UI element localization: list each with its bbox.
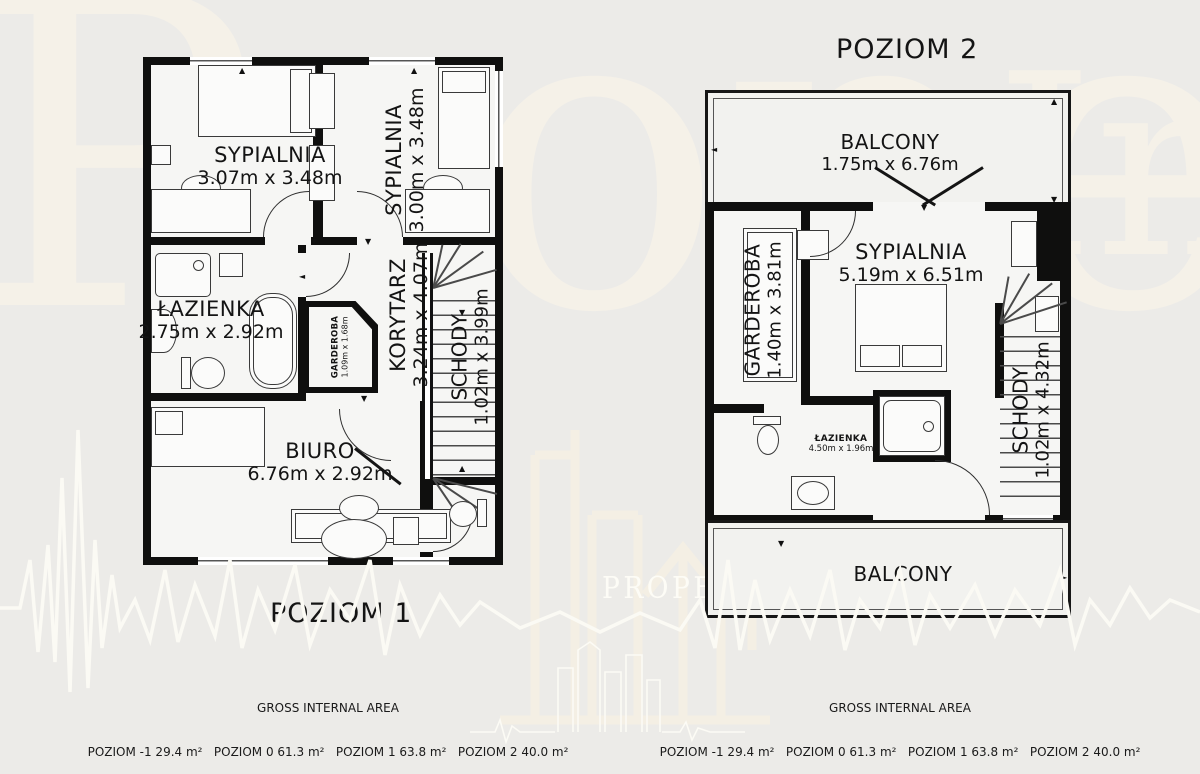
room-dims: 3.07m x 3.48m (198, 167, 343, 189)
bed-symbol (438, 67, 490, 169)
label-schody: SCHODY 1.02m x 3.99m (448, 288, 493, 425)
label-korytarz: KORYTARZ 3.24m x 4.07m (386, 243, 432, 388)
toilet-tank-symbol (753, 416, 781, 425)
round-desk-symbol (321, 519, 387, 559)
room-name: SYPIALNIA (382, 88, 406, 233)
area-summary-left: GROSS INTERNAL AREA POZIOM -1 29.4 m² PO… (32, 672, 624, 774)
window (198, 557, 328, 565)
stool-symbol (393, 517, 419, 545)
pillow-symbol (155, 411, 183, 435)
washer-knob (193, 260, 204, 271)
label-schody2: SCHODY 1.02m x 4.32m (1009, 341, 1054, 478)
shower-symbol (879, 396, 945, 456)
floorplan-level2: BALCONY 1.75m x 6.76m (703, 88, 1075, 620)
label-garderoba: GARDEROBA 1.09m x 1.68m (331, 316, 350, 379)
room-dims: 1.40m x 3.81m (765, 241, 786, 378)
room-name: BALCONY (821, 130, 958, 154)
room-dims: 2.75m x 2.92m (139, 321, 284, 343)
bed-symbol (855, 284, 947, 372)
room-name: KORYTARZ (386, 243, 410, 388)
room-dims: 1.75m x 6.76m (821, 154, 958, 175)
label-biuro: BIURO 6.76m x 2.92m (248, 439, 393, 485)
sink-symbol (791, 476, 835, 510)
room-name: SCHODY (1009, 341, 1033, 478)
window (495, 71, 503, 167)
wardrobe-symbol (309, 73, 335, 129)
room-dims: 6.76m x 2.92m (248, 463, 393, 485)
label-sypialnia2: SYPIALNIA 5.19m x 6.51m (839, 240, 984, 286)
pillow-symbol (442, 71, 486, 93)
label-sypialnia-left: SYPIALNIA 3.07m x 3.48m (198, 143, 343, 189)
shower-drain (923, 421, 934, 432)
wall (714, 404, 764, 413)
room-name: ŁAZIENKA (809, 434, 874, 444)
toilet-symbol (191, 357, 225, 389)
level1-title: POZIOM 1 (270, 598, 412, 629)
room-dims: 1.02m x 3.99m (472, 288, 493, 425)
room-dims: 5.19m x 6.51m (839, 264, 984, 286)
room-name: GARDEROBA (331, 316, 341, 379)
window (369, 57, 435, 65)
pillow-symbol (860, 345, 900, 367)
floorplan-page: Property In PROPERTY IN (0, 0, 1200, 774)
toilet-tank-symbol (477, 499, 487, 527)
room-dims: 1.09m x 1.68m (341, 316, 350, 379)
room-name: SYPIALNIA (198, 143, 343, 167)
desk-symbol (151, 189, 251, 233)
bed-symbol (198, 65, 316, 137)
window (190, 57, 252, 65)
levels-areas-line: POZIOM -1 29.4 m² POZIOM 0 61.3 m² POZIO… (32, 745, 624, 760)
room-dims: 3.00m x 3.48m (406, 88, 428, 233)
pillow-symbol (902, 345, 942, 367)
washer-symbol (155, 253, 211, 297)
shelf-symbol (1011, 221, 1037, 267)
label-garderoba2: GARDEROBA 1.40m x 3.81m (741, 241, 786, 378)
cabinet-symbol (219, 253, 243, 277)
label-balcony-top: BALCONY 1.75m x 6.76m (821, 130, 958, 175)
levels-areas-line: POZIOM -1 29.4 m² POZIOM 0 61.3 m² POZIO… (604, 745, 1196, 760)
wall (801, 396, 881, 405)
label-lazienka: ŁAZIENKA 2.75m x 2.92m (139, 297, 284, 343)
door-opening (265, 237, 311, 245)
window (393, 557, 449, 565)
toilet-symbol (757, 425, 779, 455)
label-balcony-bottom: BALCONY (854, 562, 953, 586)
room-name: SYPIALNIA (839, 240, 984, 264)
room-name: ŁAZIENKA (139, 297, 284, 321)
level2-title: POZIOM 2 (836, 34, 978, 65)
toilet-tank-symbol (181, 357, 191, 389)
wall (1037, 211, 1060, 281)
chair-symbol (339, 495, 379, 521)
room-name: BALCONY (854, 562, 953, 586)
room-dims: 4.50m x 1.96m (809, 444, 874, 454)
nightstand-symbol (151, 145, 171, 165)
gross-area-title: GROSS INTERNAL AREA (604, 701, 1196, 716)
room-dims: 3.24m x 4.07m (410, 243, 432, 388)
room-dims: 1.02m x 4.32m (1033, 341, 1054, 478)
sink-basin (797, 481, 829, 505)
area-summary-right: GROSS INTERNAL AREA POZIOM -1 29.4 m² PO… (604, 672, 1196, 774)
room-name: BIURO (248, 439, 393, 463)
label-lazienka2: ŁAZIENKA 4.50m x 1.96m (809, 434, 874, 454)
toilet-symbol (449, 501, 477, 527)
gross-area-title: GROSS INTERNAL AREA (32, 701, 624, 716)
room-name: GARDEROBA (741, 241, 765, 378)
label-sypialnia-right: SYPIALNIA 3.00m x 3.48m (382, 88, 428, 233)
floorplan-level1: SYPIALNIA 3.07m x 3.48m SYPIALNIA 3.00m … (143, 57, 503, 565)
